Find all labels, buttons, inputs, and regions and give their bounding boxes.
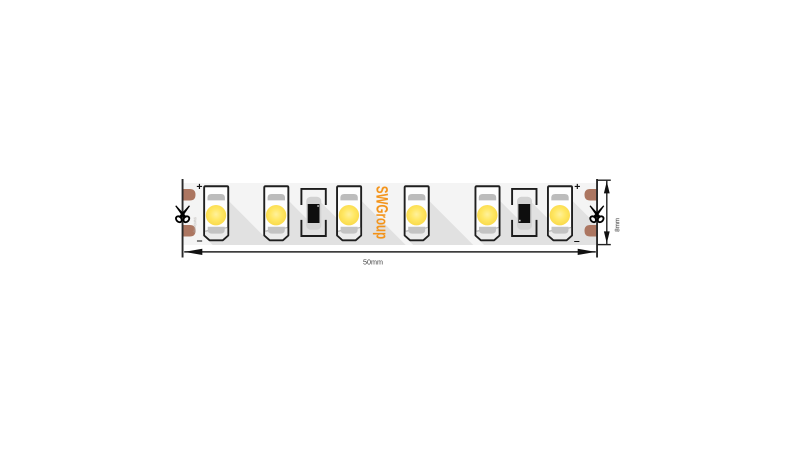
svg-text:+: + <box>574 181 580 193</box>
svg-text:SWGroup: SWGroup <box>193 217 197 233</box>
svg-text:8mm: 8mm <box>614 218 621 232</box>
svg-text:–: – <box>197 234 203 246</box>
svg-text:50mm: 50mm <box>363 257 383 266</box>
svg-text:+: + <box>196 181 202 193</box>
svg-text:–: – <box>574 235 580 247</box>
svg-text:SWGroup: SWGroup <box>373 186 391 240</box>
